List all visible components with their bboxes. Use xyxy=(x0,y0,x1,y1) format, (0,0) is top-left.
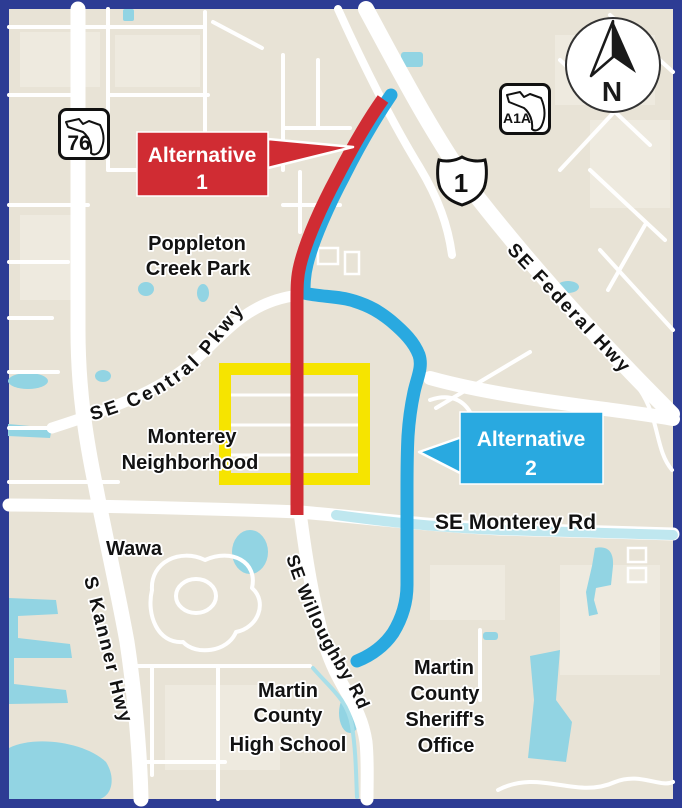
high-school-line1: Martin xyxy=(258,680,318,702)
alternatives-map: SE Central Pkwy SE Federal Hwy S Kanner … xyxy=(0,0,682,808)
pond xyxy=(8,373,48,389)
pond xyxy=(95,370,111,382)
us1-number: 1 xyxy=(454,168,468,198)
monterey-rd-label: SE Monterey Rd xyxy=(435,511,596,534)
pond xyxy=(123,9,134,21)
high-school-line2: County xyxy=(254,705,324,727)
poppleton-line2: Creek Park xyxy=(146,258,251,280)
map-canvas: SE Central Pkwy SE Federal Hwy S Kanner … xyxy=(0,0,682,808)
creek-pond xyxy=(138,282,154,296)
monterey-line2: Neighborhood xyxy=(122,452,259,474)
compass-n-label: N xyxy=(602,76,622,107)
high-school-line3: High School xyxy=(230,734,347,756)
a1a-shield: A1A xyxy=(501,85,550,134)
alt2-title: Alternative xyxy=(477,428,586,451)
alt2-number: 2 xyxy=(525,457,537,480)
north-arrow: N xyxy=(566,18,660,112)
monterey-line1: Monterey xyxy=(148,426,238,448)
sr76-number: 76 xyxy=(67,132,90,155)
sheriff-line1: Martin xyxy=(414,657,474,679)
sr76-shield: 76 xyxy=(60,110,109,159)
alt1-title: Alternative xyxy=(148,144,257,167)
pond xyxy=(483,632,498,640)
sheriff-line3: Sheriff's xyxy=(405,709,484,731)
sheriff-line2: County xyxy=(411,683,481,705)
creek-pond xyxy=(197,284,209,302)
wawa-label: Wawa xyxy=(106,538,163,560)
a1a-number: A1A xyxy=(503,110,531,126)
sheriff-line4: Office xyxy=(418,735,475,757)
poppleton-line1: Poppleton xyxy=(148,233,246,255)
alt1-number: 1 xyxy=(196,171,208,194)
